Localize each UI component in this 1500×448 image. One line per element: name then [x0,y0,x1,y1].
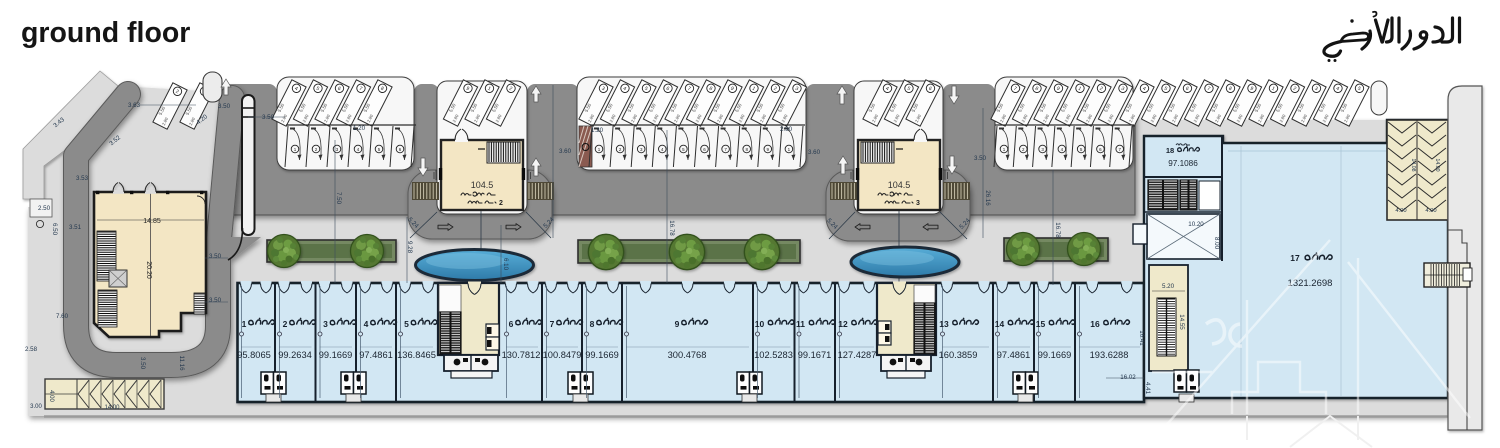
svg-text:11.16: 11.16 [178,355,185,371]
svg-text:6: 6 [509,319,514,329]
svg-text:99.2634: 99.2634 [278,350,312,360]
svg-text:14.00: 14.00 [104,405,120,411]
svg-text:102.5283: 102.5283 [754,350,793,360]
svg-text:3.51: 3.51 [69,224,82,231]
svg-text:2.58: 2.58 [25,346,38,353]
svg-text:130.7812: 130.7812 [502,350,541,360]
svg-text:18: 18 [1166,146,1174,155]
svg-text:99.1671: 99.1671 [798,350,832,360]
svg-text:26.16: 26.16 [984,190,991,206]
svg-text:8: 8 [590,319,595,329]
svg-text:3.50: 3.50 [209,297,222,304]
svg-text:1: 1 [242,319,247,329]
svg-text:104.5: 104.5 [888,180,911,190]
svg-text:13: 13 [939,319,949,329]
svg-text:3.53: 3.53 [76,175,89,182]
svg-text:7: 7 [550,319,555,329]
svg-text:4.00: 4.00 [1425,208,1436,214]
svg-text:6.50: 6.50 [51,223,58,236]
svg-text:14.55: 14.55 [1178,314,1185,330]
svg-text:7.50: 7.50 [335,192,342,205]
svg-text:6.10: 6.10 [502,258,509,271]
svg-text:16.78: 16.78 [1054,222,1061,238]
svg-text:9: 9 [675,319,680,329]
svg-text:3: 3 [323,319,328,329]
svg-text:4: 4 [364,319,369,329]
svg-text:8.00: 8.00 [1213,237,1220,250]
svg-text:5: 5 [404,319,409,329]
svg-text:2.90: 2.90 [780,126,793,133]
svg-text:300.4768: 300.4768 [668,350,707,360]
svg-text:2: 2 [499,200,503,207]
svg-text:99.1669: 99.1669 [1038,350,1072,360]
svg-text:1.20: 1.20 [353,125,366,132]
svg-text:15: 15 [1036,319,1046,329]
svg-text:97.1086: 97.1086 [1168,159,1198,168]
svg-text:11: 11 [796,319,805,329]
svg-text:10.20: 10.20 [1188,221,1204,228]
svg-text:17: 17 [1290,253,1300,263]
svg-text:16.78: 16.78 [668,220,675,236]
svg-text:4.00: 4.00 [48,390,54,402]
svg-text:7.60: 7.60 [56,313,69,320]
svg-text:3.50: 3.50 [218,103,231,110]
svg-text:3.00: 3.00 [30,404,42,410]
svg-text:20.20: 20.20 [145,261,152,279]
svg-text:16.41: 16.41 [1138,330,1145,346]
svg-text:16.02: 16.02 [1120,374,1136,381]
svg-text:193.6288: 193.6288 [1090,350,1129,360]
svg-text:4.41: 4.41 [1144,382,1151,395]
svg-text:14.85: 14.85 [143,218,161,225]
svg-text:1.20: 1.20 [591,127,604,134]
svg-text:3.63: 3.63 [128,102,141,109]
svg-text:97.4861: 97.4861 [359,350,393,360]
svg-text:99.1669: 99.1669 [585,350,619,360]
svg-text:12: 12 [838,319,848,329]
svg-text:14.00: 14.00 [1434,159,1440,172]
svg-text:97.4861: 97.4861 [997,350,1031,360]
svg-text:127.4287: 127.4287 [838,350,877,360]
svg-text:3: 3 [916,200,920,207]
svg-text:3.60: 3.60 [808,149,821,156]
svg-text:3.60: 3.60 [559,148,572,155]
svg-text:99.1669: 99.1669 [319,350,353,360]
svg-text:14.08: 14.08 [1410,159,1416,172]
svg-text:10: 10 [755,319,765,329]
svg-text:3.50: 3.50 [209,253,222,260]
svg-text:3.50: 3.50 [974,155,987,162]
svg-text:14: 14 [995,319,1005,329]
svg-text:104.5: 104.5 [471,180,494,190]
svg-text:136.8465: 136.8465 [397,350,436,360]
svg-text:9.28: 9.28 [406,241,413,254]
svg-text:95.8065: 95.8065 [237,350,271,360]
svg-text:3.50: 3.50 [139,357,146,370]
svg-text:ground floor: ground floor [21,17,190,49]
svg-text:100.8479: 100.8479 [543,350,582,360]
svg-text:2.50: 2.50 [38,205,51,212]
svg-text:4.00: 4.00 [1395,208,1406,214]
svg-text:160.3859: 160.3859 [939,350,978,360]
svg-text:2: 2 [283,319,288,329]
svg-text:3.50: 3.50 [262,114,275,121]
svg-text:16: 16 [1090,319,1100,329]
svg-text:5.20: 5.20 [1162,283,1175,290]
